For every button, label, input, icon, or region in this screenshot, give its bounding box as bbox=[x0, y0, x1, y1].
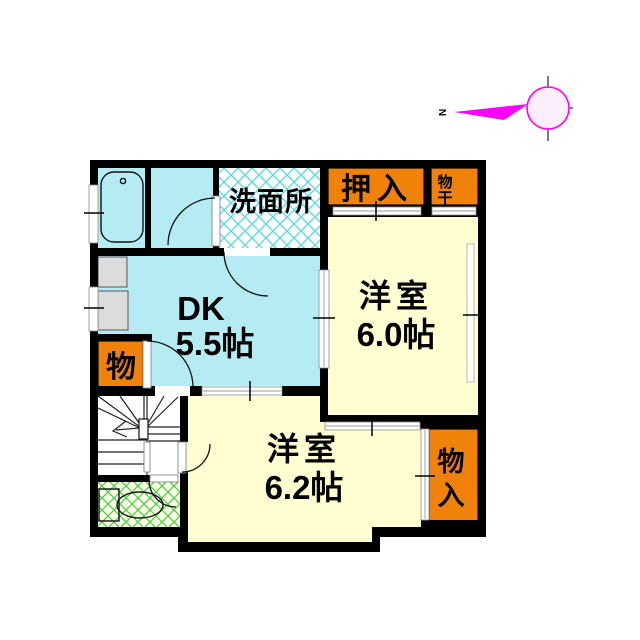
bathroom-floor bbox=[98, 168, 213, 248]
counter-unit-2 bbox=[98, 291, 128, 330]
room62-size: 6.2帖 bbox=[265, 469, 344, 506]
wall-storage-br-bottom bbox=[421, 520, 478, 529]
wall-dk-top-left bbox=[98, 248, 224, 256]
wall-toilet-top bbox=[90, 475, 150, 482]
room60-label: 洋室 bbox=[359, 278, 433, 314]
oshiire-label: 押入 bbox=[341, 173, 413, 206]
kitchen-counter-units bbox=[98, 257, 128, 330]
dk-window bbox=[89, 287, 98, 331]
wall-bottom-middle bbox=[178, 542, 380, 552]
compass-circle bbox=[527, 87, 569, 129]
washroom-label: 洗面所 bbox=[229, 187, 313, 217]
wall-bottom-left bbox=[90, 527, 186, 537]
floor-plan-drawing: 洗面所 押入 物 干 洋室 6.0帖 DK 5.5帖 物 洋室 6.2帖 物 入… bbox=[0, 0, 640, 640]
storage-br-label-2: 入 bbox=[438, 481, 465, 511]
room62-door-leaf bbox=[178, 442, 186, 473]
storage-left-door-leaf bbox=[143, 341, 151, 388]
compass: N bbox=[438, 76, 573, 141]
dk-size: 5.5帖 bbox=[176, 325, 255, 362]
monohoshi-label-2: 干 bbox=[437, 190, 452, 207]
wall-oshiire-monohoshi bbox=[424, 168, 431, 206]
wall-dk-bottom-right bbox=[282, 386, 328, 396]
monohoshi-label-1: 物 bbox=[437, 173, 452, 191]
toilet-door-leaf bbox=[150, 475, 178, 482]
wall-outer-right bbox=[478, 160, 486, 537]
wall-outer-top bbox=[90, 160, 486, 168]
room60-size: 6.0帖 bbox=[357, 316, 436, 353]
wall-washroom-upper bbox=[213, 168, 219, 196]
stairhall-left-leaf bbox=[144, 442, 150, 472]
dk-label: DK bbox=[177, 290, 225, 327]
storage-left-label: 物 bbox=[106, 351, 136, 384]
bathroom-door-leaf bbox=[212, 196, 220, 246]
wall-stairhall-upper bbox=[180, 396, 188, 442]
room62-label: 洋室 bbox=[267, 431, 341, 467]
wall-storage-br-top bbox=[420, 415, 478, 429]
wall-dk-bottom-mid bbox=[190, 386, 202, 396]
room60-window bbox=[467, 244, 474, 382]
storage-br-label-1: 物 bbox=[438, 447, 465, 477]
wall-bath-divider bbox=[145, 168, 151, 248]
wall-storage-left-top bbox=[90, 334, 152, 341]
stair-newel bbox=[139, 419, 148, 439]
bathroom-window bbox=[89, 185, 98, 243]
counter-unit-1 bbox=[98, 257, 127, 287]
compass-needle bbox=[454, 104, 528, 120]
wall-dk-top-right bbox=[270, 248, 328, 256]
floor-plan-canvas: 洗面所 押入 物 干 洋室 6.0帖 DK 5.5帖 物 洋室 6.2帖 物 入… bbox=[0, 0, 640, 640]
washroom-door-opening bbox=[224, 248, 270, 256]
compass-north-label: N bbox=[438, 109, 449, 116]
wall-stairhall-lower bbox=[180, 472, 188, 542]
